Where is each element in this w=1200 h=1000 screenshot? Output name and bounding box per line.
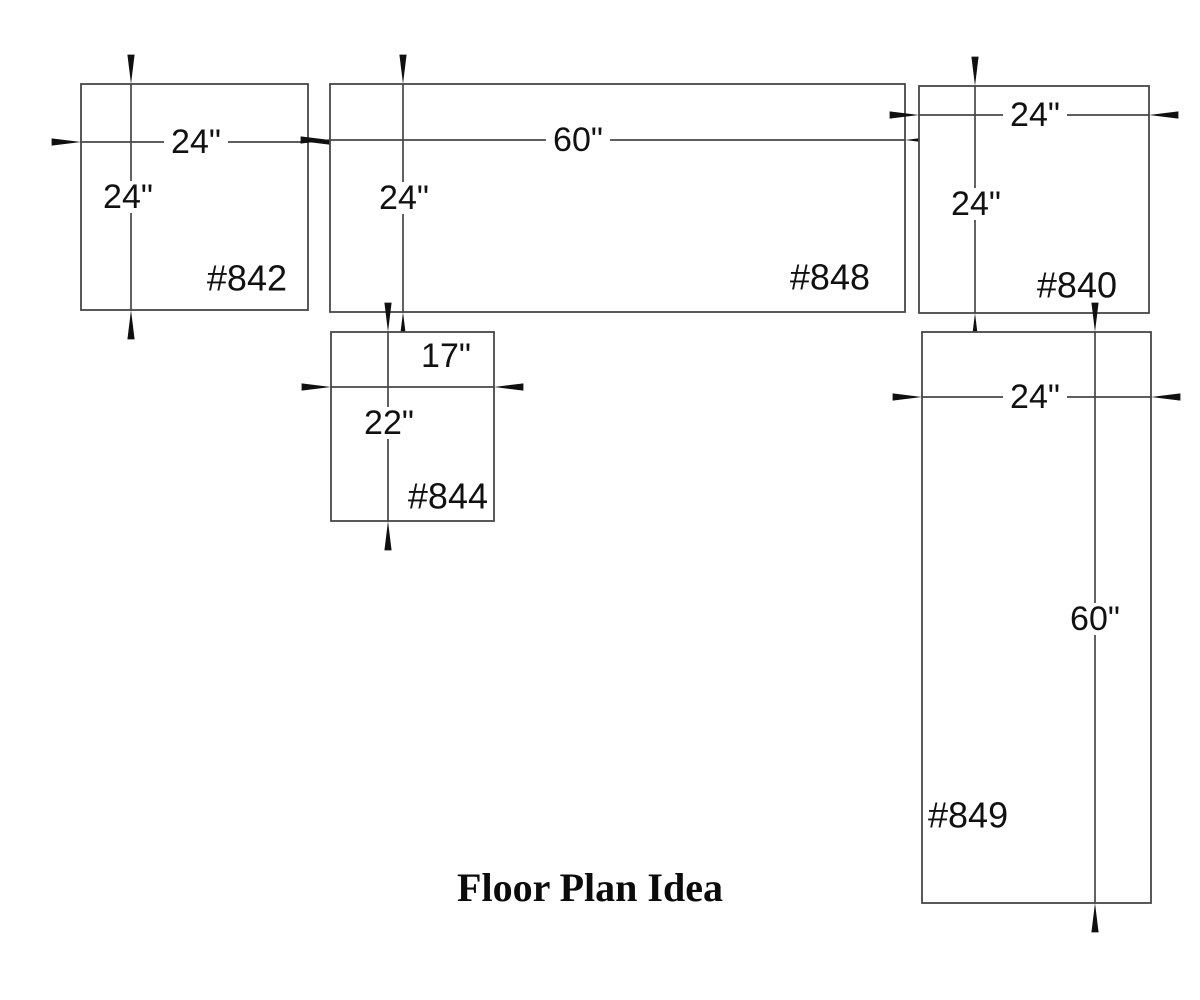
unit-849-width-label: 24" — [1010, 378, 1060, 416]
unit-842-id-label: #842 — [207, 258, 287, 299]
unit-844-width-label: 17" — [421, 337, 471, 375]
unit-840: 24" 24" #840 — [919, 86, 1149, 313]
unit-842-height-label: 24" — [103, 178, 153, 216]
unit-840-height-label: 24" — [951, 185, 1001, 223]
unit-849-id-label: #849 — [928, 795, 1008, 836]
unit-848-width-label: 60" — [553, 121, 603, 159]
unit-840-width-label: 24" — [1010, 96, 1060, 134]
floor-plan-canvas: 24" 24" #842 60" 24" #848 24" 24" #840 — [0, 0, 1200, 1000]
unit-844-id-label: #844 — [408, 476, 488, 517]
unit-842-width-label: 24" — [171, 123, 221, 161]
unit-848: 60" 24" #848 — [330, 84, 905, 312]
unit-849: 24" 60" #849 — [922, 332, 1151, 903]
unit-842: 24" 24" #842 — [81, 84, 308, 310]
unit-844: 17" 22" #844 — [331, 332, 494, 521]
unit-848-height-label: 24" — [379, 179, 429, 217]
diagram-title: Floor Plan Idea — [390, 864, 790, 911]
floor-plan-diagram: 24" 24" #842 60" 24" #848 24" 24" #840 — [0, 0, 1200, 1000]
unit-840-id-label: #840 — [1037, 265, 1117, 306]
unit-848-id-label: #848 — [790, 257, 870, 298]
unit-849-height-label: 60" — [1070, 600, 1120, 638]
unit-844-height-label: 22" — [364, 404, 414, 442]
